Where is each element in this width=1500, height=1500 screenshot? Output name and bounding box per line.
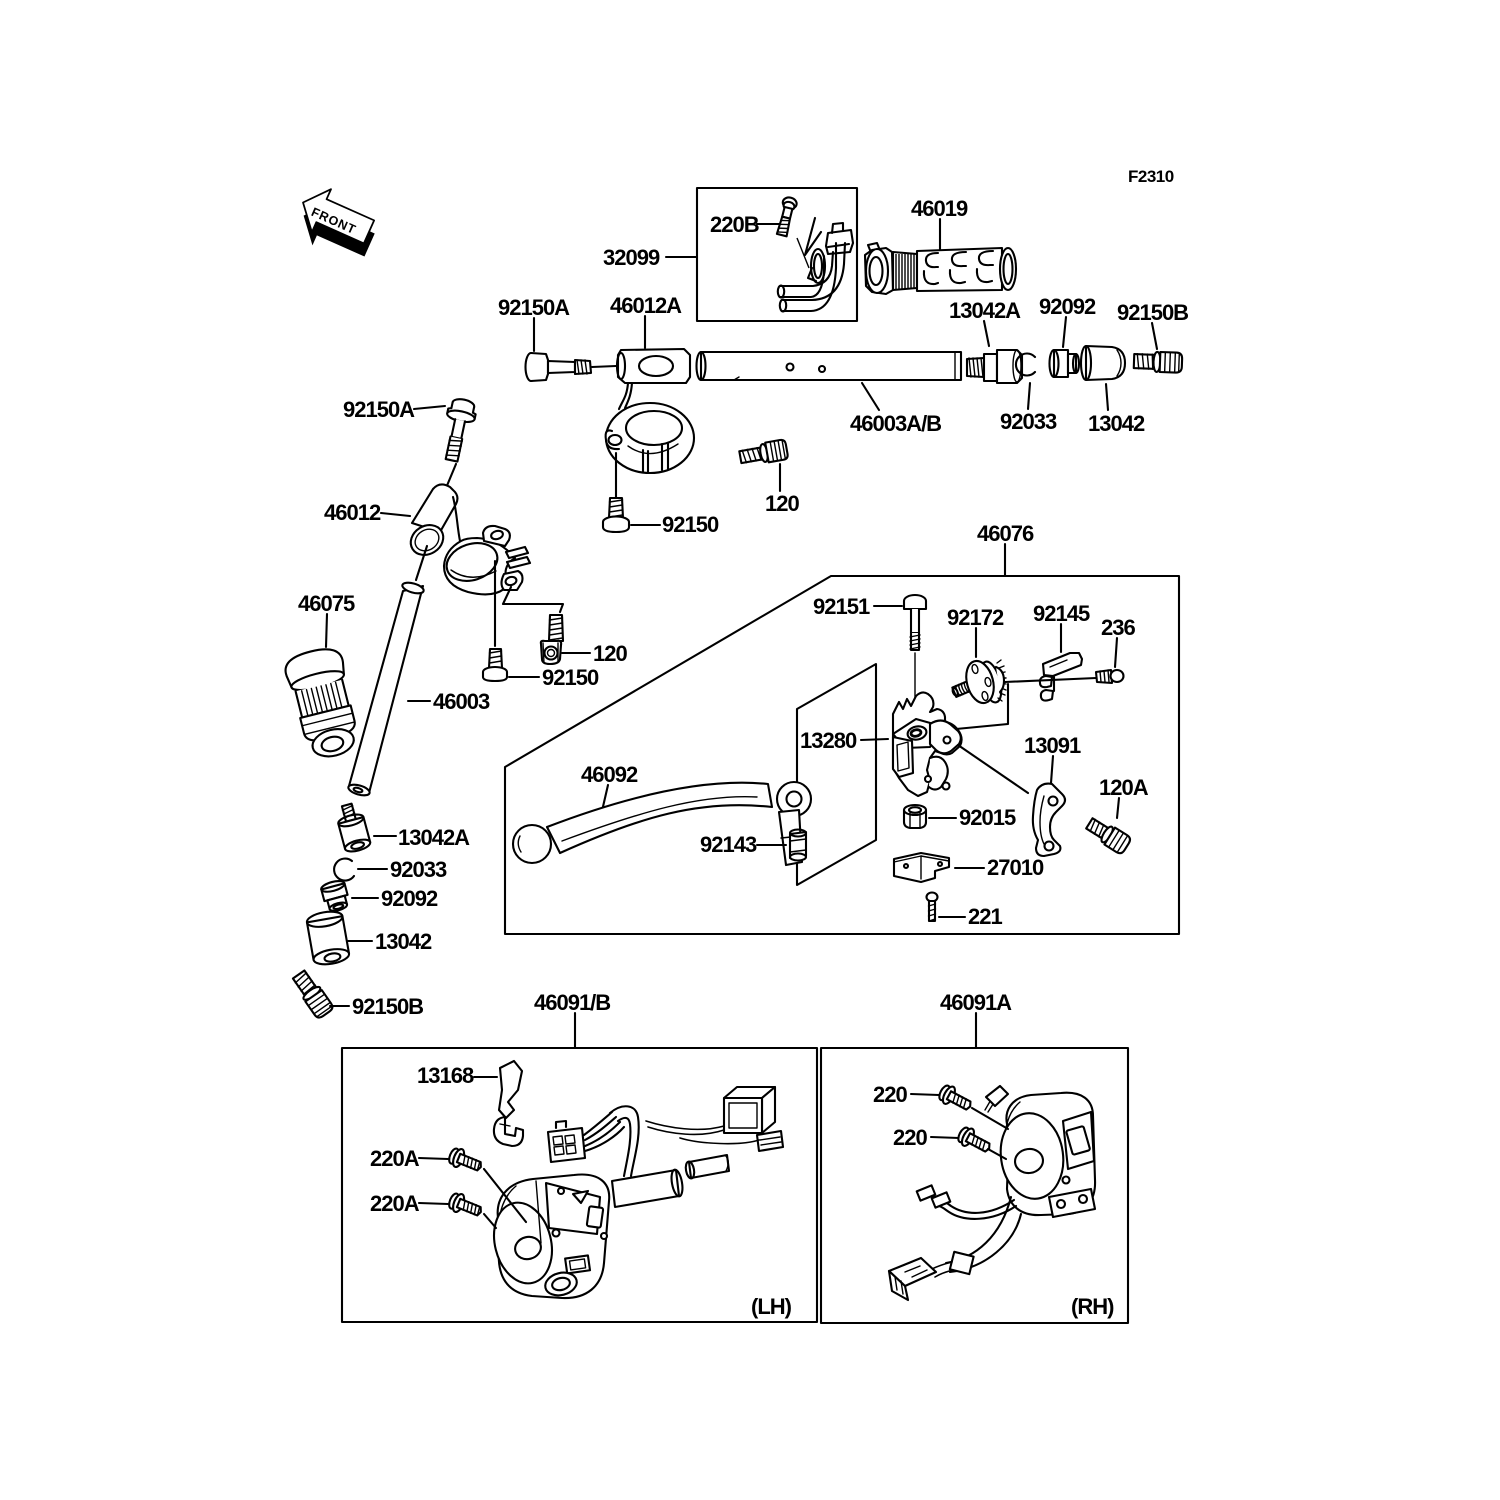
- svg-text:220A: 220A: [370, 1146, 420, 1171]
- svg-text:46092: 46092: [581, 762, 638, 787]
- svg-text:46091/B: 46091/B: [534, 990, 610, 1015]
- svg-text:32099: 32099: [603, 245, 660, 270]
- svg-text:220: 220: [893, 1125, 927, 1150]
- svg-text:(RH): (RH): [1071, 1294, 1114, 1319]
- svg-text:46003A/B: 46003A/B: [850, 411, 941, 436]
- svg-text:46075: 46075: [298, 591, 355, 616]
- svg-text:46091A: 46091A: [940, 990, 1012, 1015]
- svg-text:92150: 92150: [542, 665, 599, 690]
- svg-text:46019: 46019: [911, 196, 968, 221]
- svg-text:92015: 92015: [959, 805, 1016, 830]
- svg-text:220A: 220A: [370, 1191, 420, 1216]
- svg-text:92033: 92033: [1000, 409, 1057, 434]
- svg-text:120: 120: [593, 641, 627, 666]
- svg-text:92092: 92092: [1039, 294, 1096, 319]
- svg-text:92033: 92033: [390, 857, 447, 882]
- svg-text:92151: 92151: [813, 594, 870, 619]
- svg-text:92172: 92172: [947, 605, 1004, 630]
- svg-text:220B: 220B: [710, 212, 759, 237]
- svg-text:221: 221: [968, 904, 1002, 929]
- svg-text:92150B: 92150B: [352, 994, 423, 1019]
- svg-text:F2310: F2310: [1128, 167, 1174, 186]
- svg-text:120: 120: [765, 491, 799, 516]
- svg-text:27010: 27010: [987, 855, 1044, 880]
- svg-text:13042: 13042: [375, 929, 432, 954]
- svg-text:46076: 46076: [977, 521, 1034, 546]
- svg-text:92150A: 92150A: [343, 397, 415, 422]
- svg-text:13042A: 13042A: [949, 298, 1021, 323]
- svg-text:92150B: 92150B: [1117, 300, 1188, 325]
- svg-text:(LH): (LH): [751, 1294, 792, 1319]
- svg-text:92150: 92150: [662, 512, 719, 537]
- svg-text:13042A: 13042A: [398, 825, 470, 850]
- svg-text:120A: 120A: [1099, 775, 1149, 800]
- svg-text:13091: 13091: [1024, 733, 1081, 758]
- svg-text:46012: 46012: [324, 500, 381, 525]
- svg-text:236: 236: [1101, 615, 1135, 640]
- svg-text:13280: 13280: [800, 728, 857, 753]
- svg-text:13042: 13042: [1088, 411, 1145, 436]
- svg-text:46003: 46003: [433, 689, 490, 714]
- svg-text:46012A: 46012A: [610, 293, 682, 318]
- svg-text:92145: 92145: [1033, 601, 1090, 626]
- svg-text:92150A: 92150A: [498, 295, 570, 320]
- svg-text:92143: 92143: [700, 832, 757, 857]
- svg-text:13168: 13168: [417, 1063, 474, 1088]
- svg-text:220: 220: [873, 1082, 907, 1107]
- svg-text:92092: 92092: [381, 886, 438, 911]
